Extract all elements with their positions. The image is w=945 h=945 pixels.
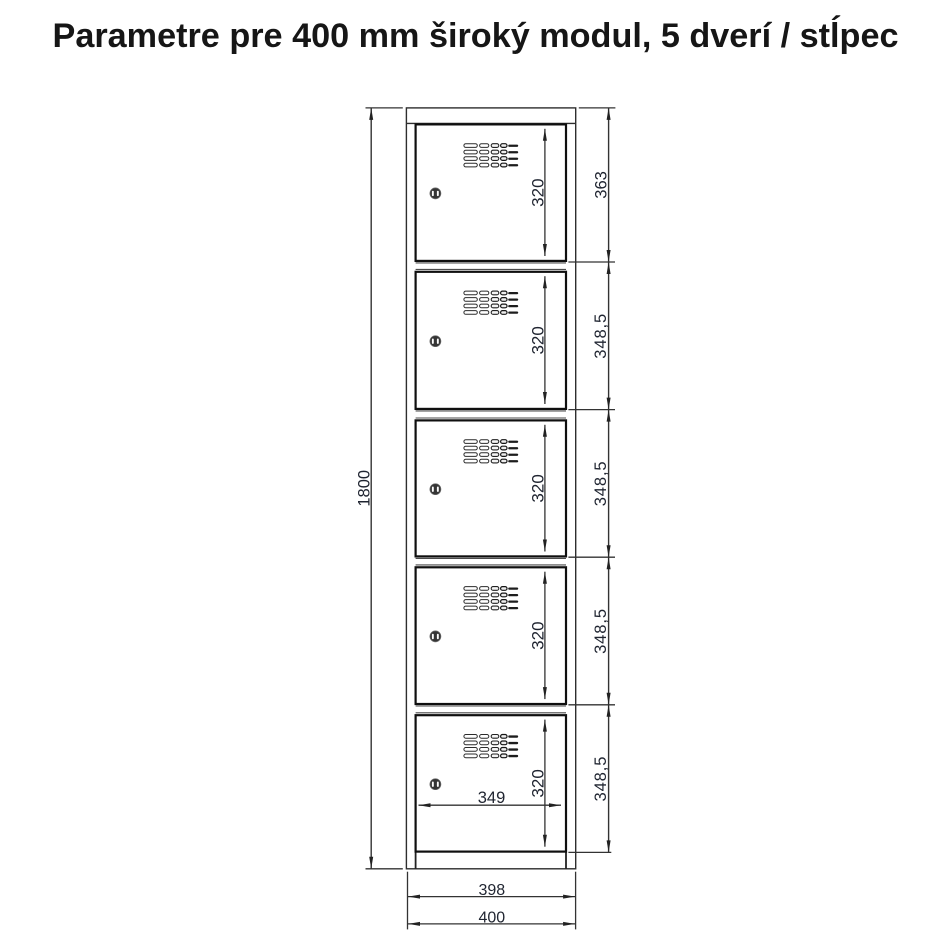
svg-text:348,5: 348,5 (592, 608, 610, 654)
svg-text:400: 400 (478, 909, 505, 926)
svg-text:320: 320 (528, 474, 547, 502)
svg-text:348,5: 348,5 (592, 461, 610, 507)
svg-text:320: 320 (528, 621, 547, 649)
svg-text:398: 398 (478, 882, 505, 899)
svg-text:1800: 1800 (356, 470, 374, 507)
svg-text:Parametre pre 400 mm široký mo: Parametre pre 400 mm široký modul, 5 dve… (53, 14, 899, 55)
svg-text:349: 349 (478, 789, 506, 807)
svg-text:348,5: 348,5 (592, 313, 610, 359)
svg-text:320: 320 (528, 326, 547, 354)
svg-text:348,5: 348,5 (592, 756, 610, 802)
svg-text:363: 363 (592, 171, 610, 199)
svg-text:320: 320 (528, 178, 547, 206)
svg-text:320: 320 (528, 769, 547, 797)
